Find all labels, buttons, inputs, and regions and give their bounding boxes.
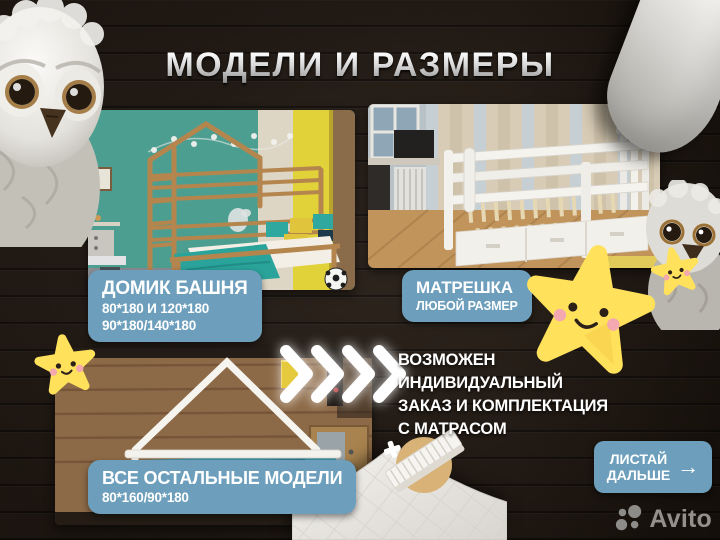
watermark-text: Avito xyxy=(649,505,712,534)
swipe-next-line2: ДАЛЬШЕ xyxy=(607,467,671,483)
note-line: ЗАКАЗ И КОМПЛЕКТАЦИЯ xyxy=(398,395,608,418)
model-name: ВСЕ ОСТАЛЬНЫЕ МОДЕЛИ xyxy=(102,468,342,488)
model-sizes-line: 80*180 И 120*180 xyxy=(102,301,248,316)
model-sizes-line: ЛЮБОЙ РАЗМЕР xyxy=(416,299,518,313)
model-name: МАТРЕШКА xyxy=(416,278,518,297)
avito-logo-icon xyxy=(614,504,644,534)
model-sizes-line: 80*160/90*180 xyxy=(102,490,342,505)
swipe-next-line1: ЛИСТАЙ xyxy=(607,451,671,467)
model-card-domik-bashnya: ДОМИК БАШНЯ 80*180 И 120*180 90*180/140*… xyxy=(88,270,262,342)
photo-house-tower-bed xyxy=(88,110,355,290)
watermark: Avito xyxy=(614,504,712,534)
house-bunk-bed-scene-icon xyxy=(88,110,355,290)
star-smiley-icon xyxy=(507,231,669,393)
note-line: С МАТРАСОМ xyxy=(398,418,608,441)
model-card-matreshka: МАТРЕШКА ЛЮБОЙ РАЗМЕР xyxy=(402,270,532,322)
chevrons-pointer xyxy=(278,342,413,411)
model-card-other-models: ВСЕ ОСТАЛЬНЫЕ МОДЕЛИ 80*160/90*180 xyxy=(88,460,356,514)
model-sizes-line: 90*180/140*180 xyxy=(102,318,248,333)
white-bed-scene-icon xyxy=(368,104,660,268)
star-smiley-icon xyxy=(645,241,707,303)
photo-matreshka-bed xyxy=(368,104,660,268)
chevron-right-icon xyxy=(278,342,413,406)
star-plush-small-right xyxy=(645,241,707,303)
swipe-next-label: ЛИСТАЙ ДАЛЬШЕ xyxy=(607,451,671,483)
arrow-right-icon: → xyxy=(677,456,699,478)
star-plush-small-left xyxy=(29,329,104,404)
soccer-ball-icon xyxy=(325,268,347,290)
star-plush-big xyxy=(507,231,669,393)
ad-collage: МОДЕЛИ И РАЗМЕРЫ xyxy=(0,0,720,540)
swipe-next-button[interactable]: ЛИСТАЙ ДАЛЬШЕ → xyxy=(594,441,712,493)
model-name: ДОМИК БАШНЯ xyxy=(102,278,248,299)
owl-plush-left xyxy=(0,0,115,252)
owl-plush-icon xyxy=(0,0,115,247)
star-smiley-icon xyxy=(29,329,104,404)
